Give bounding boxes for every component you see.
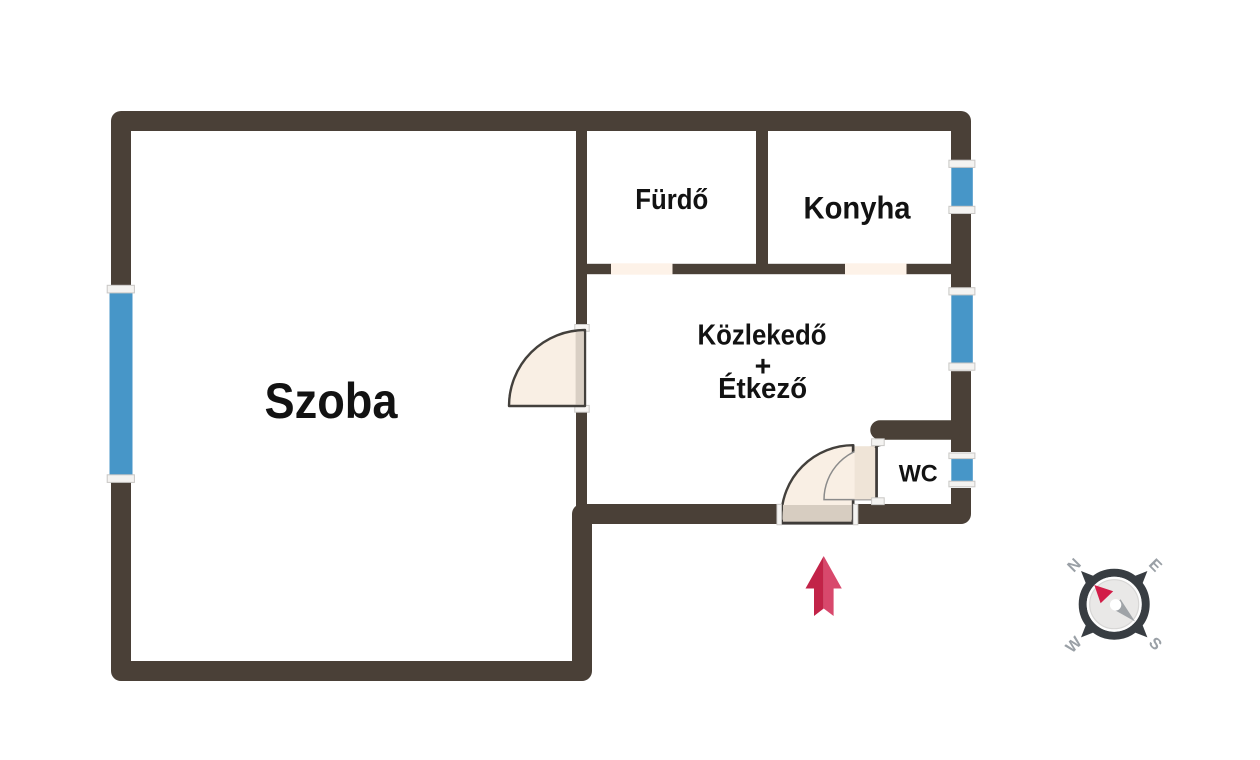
svg-text:Étkező: Étkező	[718, 373, 807, 405]
svg-text:Közlekedő: Közlekedő	[698, 320, 827, 352]
svg-text:WC: WC	[899, 461, 938, 488]
svg-text:Szoba: Szoba	[265, 373, 399, 429]
svg-text:Konyha: Konyha	[804, 190, 911, 226]
svg-text:Fürdő: Fürdő	[635, 184, 708, 216]
